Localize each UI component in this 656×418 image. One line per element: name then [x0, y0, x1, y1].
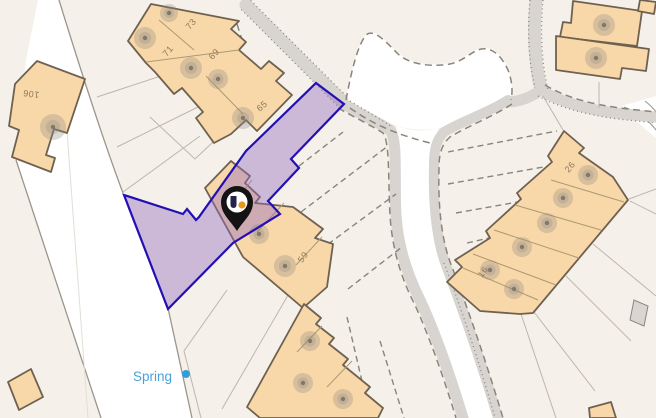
tree-icon — [257, 232, 261, 236]
building-top-right-corner — [638, 0, 656, 14]
tree-icon — [520, 245, 524, 249]
spring-dot — [182, 370, 190, 378]
tree-icon — [216, 77, 220, 81]
map-canvas[interactable]: 106 71 73 69 65 59 26 16 Spring — [0, 0, 656, 418]
tree-icon — [308, 339, 312, 343]
tree-icon — [594, 56, 598, 60]
tree-icon — [283, 264, 287, 268]
spring-label: Spring — [133, 369, 172, 384]
footpath-top-right-vertical — [535, 0, 541, 90]
pin-logo-dark — [231, 196, 237, 208]
tree-icon — [545, 221, 549, 225]
tree-icon — [189, 66, 193, 70]
tree-icon — [602, 23, 606, 27]
tree-icon — [241, 116, 245, 120]
pin-logo-orange — [238, 201, 245, 208]
tree-icon — [301, 381, 305, 385]
tree-icon — [143, 36, 147, 40]
map-svg[interactable]: 106 71 73 69 65 59 26 16 Spring — [0, 0, 656, 418]
tree-icon — [167, 11, 171, 15]
tree-icon — [586, 173, 590, 177]
pin-inner-circle — [227, 192, 248, 213]
tree-icon — [561, 196, 565, 200]
tree-icon — [512, 287, 516, 291]
tree-icon — [51, 125, 55, 129]
tree-icon — [341, 397, 345, 401]
